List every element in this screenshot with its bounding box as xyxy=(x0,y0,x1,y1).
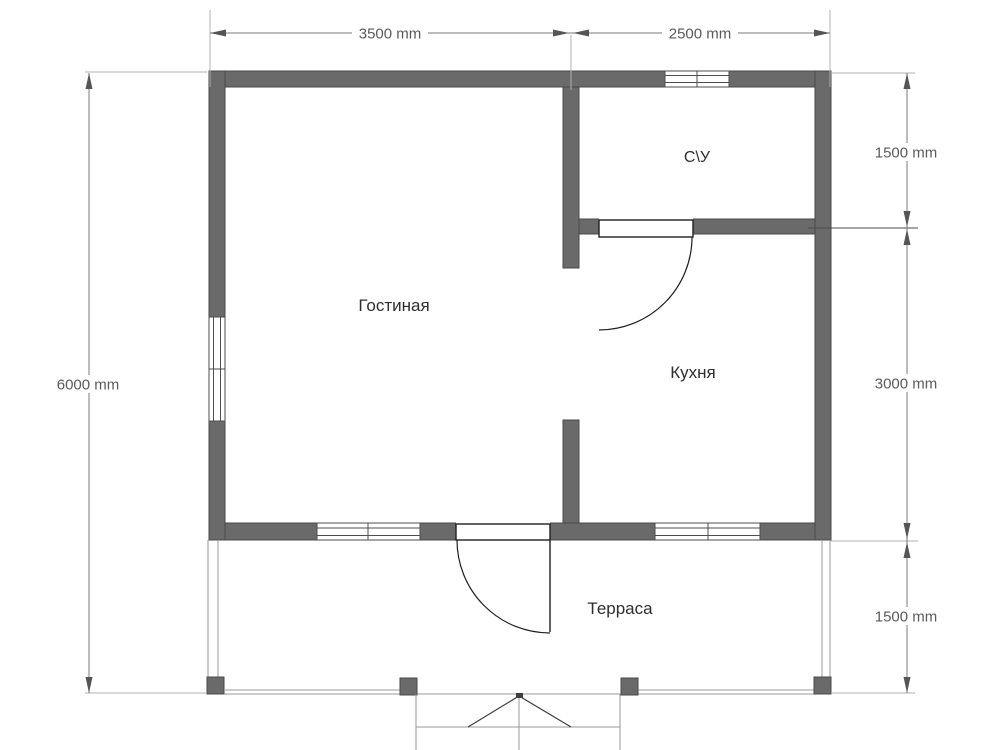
room-label-terrace: Терраса xyxy=(587,599,653,618)
room-label-living-room: Гостиная xyxy=(358,296,429,315)
floor-plan-drawing: 3500 mm 2500 mm 6000 mm 1500 mm 3000 mm … xyxy=(0,0,1000,750)
window-top xyxy=(665,71,729,87)
room-label-bathroom: С\У xyxy=(684,149,711,166)
dim-depth-kitchen: 3000 mm xyxy=(875,376,938,393)
terrace-posts xyxy=(207,677,831,695)
door-bathroom-swing-arc xyxy=(599,237,692,330)
dim-width-kitchen: 2500 mm xyxy=(669,26,732,43)
window-bottom-living xyxy=(317,523,420,540)
dim-depth-terrace: 1500 mm xyxy=(875,609,938,626)
walls xyxy=(209,71,831,540)
wall-left xyxy=(209,71,225,540)
terrace-structure xyxy=(207,540,831,695)
wall-right xyxy=(815,71,831,540)
stairs xyxy=(416,693,620,750)
dim-total-depth: 6000 mm xyxy=(57,377,120,394)
dimension-left: 6000 mm xyxy=(49,72,207,693)
window-left xyxy=(209,317,225,421)
door-terrace xyxy=(456,522,550,633)
dim-width-living: 3500 mm xyxy=(359,26,422,43)
wall-interior-upper xyxy=(563,87,579,268)
room-label-kitchen: Кухня xyxy=(670,363,716,382)
door-bathroom xyxy=(599,218,693,330)
wall-bathroom-right xyxy=(693,219,815,234)
windows xyxy=(209,71,760,540)
door-terrace-swing-arc xyxy=(457,540,550,633)
stair-arrow-peak xyxy=(516,693,523,698)
dim-depth-bathroom: 1500 mm xyxy=(875,145,938,162)
floor-plan-page: 3500 mm 2500 mm 6000 mm 1500 mm 3000 mm … xyxy=(0,0,1000,750)
window-bottom-kitchen xyxy=(655,523,760,540)
wall-top xyxy=(209,71,831,87)
wall-interior-lower xyxy=(563,420,579,523)
wall-bathroom-left xyxy=(579,219,599,234)
